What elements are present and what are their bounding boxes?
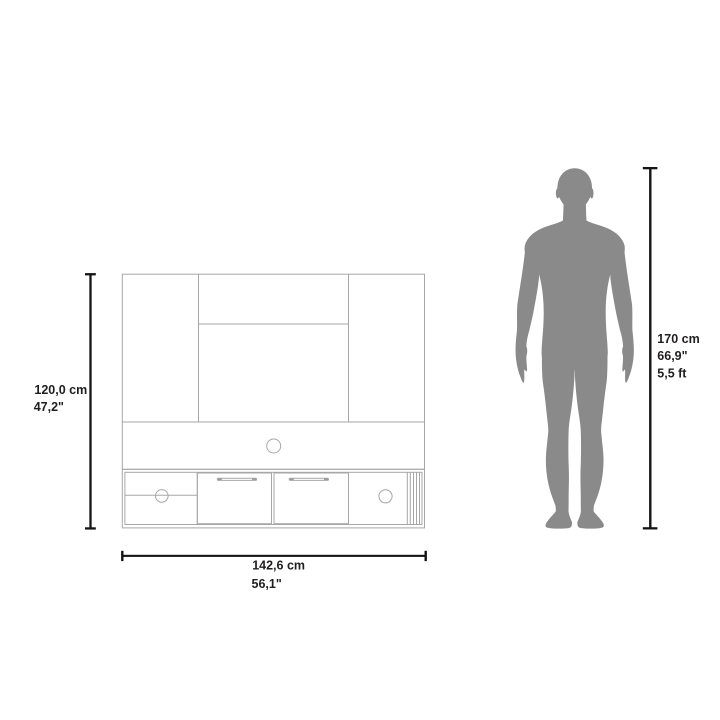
svg-text:66,9": 66,9" [657, 349, 687, 363]
svg-text:56,1": 56,1" [252, 577, 282, 591]
svg-text:170 cm: 170 cm [657, 332, 699, 346]
svg-text:142,6 cm: 142,6 cm [252, 559, 305, 573]
svg-text:120,0 cm: 120,0 cm [34, 383, 87, 397]
svg-text:47,2": 47,2" [34, 400, 64, 414]
svg-text:5,5 ft: 5,5 ft [657, 367, 687, 381]
